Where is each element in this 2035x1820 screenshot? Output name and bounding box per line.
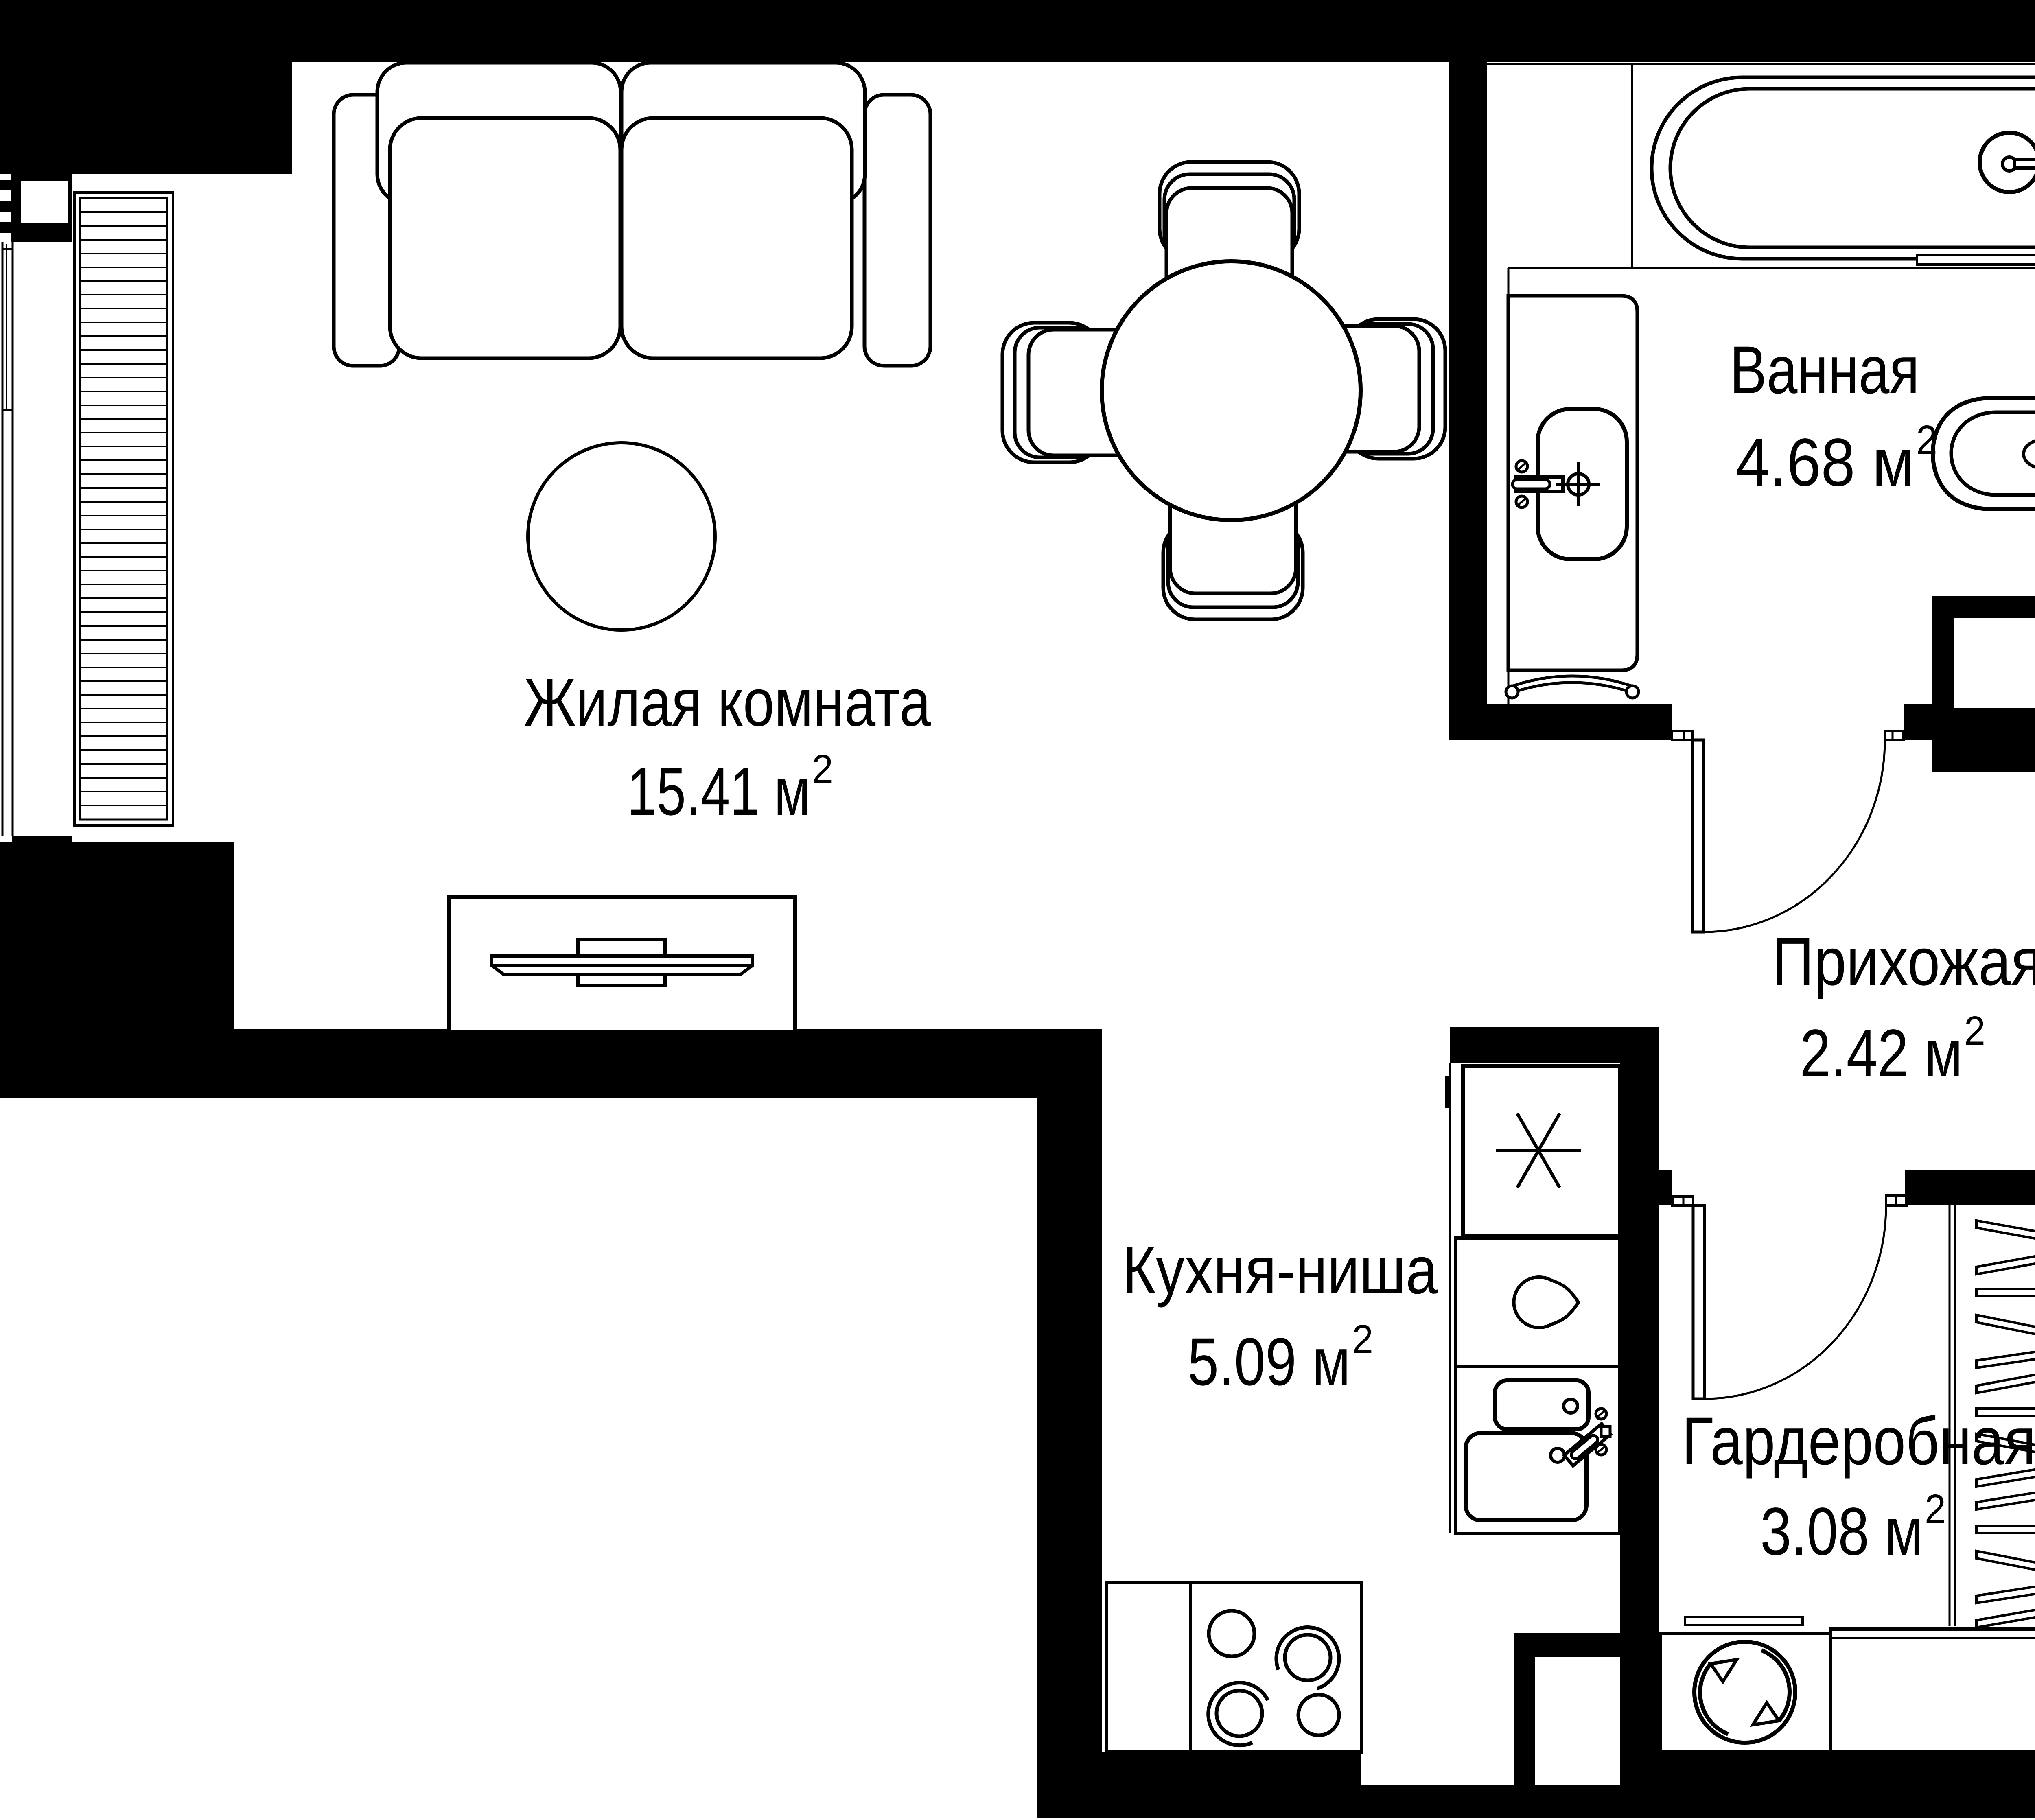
svg-text:2: 2 <box>1964 1008 1985 1054</box>
svg-text:5.09 м: 5.09 м <box>1188 1324 1350 1400</box>
svg-text:2: 2 <box>1925 1486 1946 1532</box>
svg-text:2.42 м: 2.42 м <box>1800 1016 1963 1091</box>
svg-text:15.41 м: 15.41 м <box>627 754 810 829</box>
svg-text:2: 2 <box>1352 1317 1373 1362</box>
svg-text:2: 2 <box>812 746 833 792</box>
svg-text:Ванная: Ванная <box>1730 332 1919 408</box>
svg-text:2: 2 <box>1916 417 1937 463</box>
svg-text:Кухня-ниша: Кухня-ниша <box>1123 1233 1438 1308</box>
svg-text:3.08 м: 3.08 м <box>1760 1494 1923 1569</box>
svg-text:Прихожая: Прихожая <box>1772 924 2035 1000</box>
svg-text:Гардеробная: Гардеробная <box>1682 1404 2035 1479</box>
svg-text:4.68 м: 4.68 м <box>1735 425 1915 500</box>
svg-text:Жилая комната: Жилая комната <box>524 665 931 740</box>
